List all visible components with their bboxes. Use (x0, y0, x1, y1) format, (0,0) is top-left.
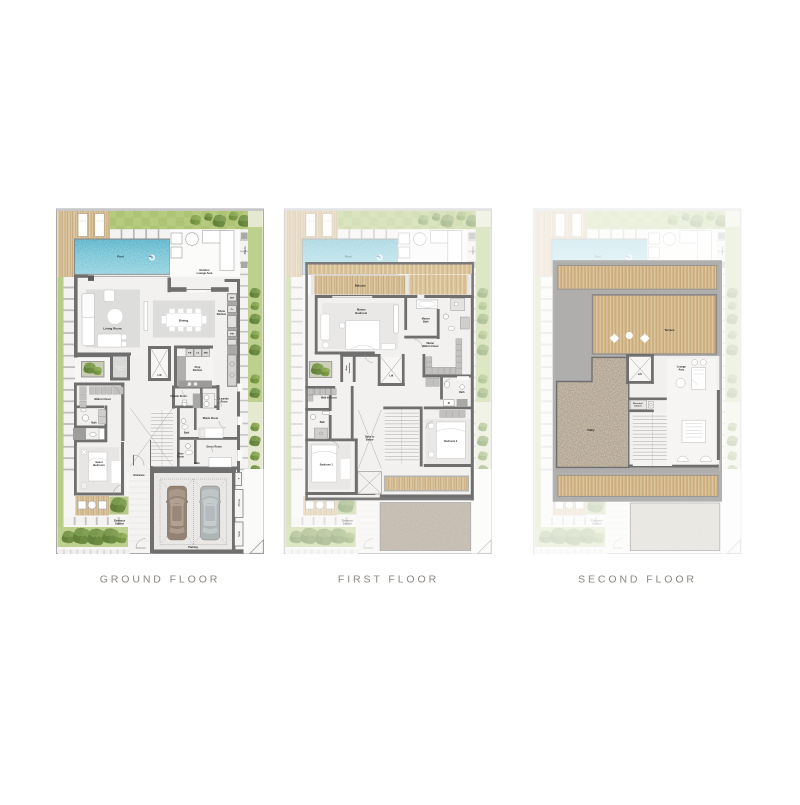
svg-text:Bedroom 1: Bedroom 1 (320, 464, 334, 467)
svg-text:Maids Room: Maids Room (203, 416, 219, 420)
svg-text:Garden: Garden (115, 522, 124, 526)
svg-text:Bath: Bath (194, 462, 200, 465)
svg-text:Lounge Area: Lounge Area (197, 271, 213, 275)
svg-text:Room: Room (221, 401, 228, 404)
svg-text:Entrance: Entrance (133, 473, 145, 477)
svg-text:Pool: Pool (345, 255, 352, 259)
svg-text:Bedroom: Bedroom (355, 311, 367, 315)
svg-text:DW: DW (187, 385, 190, 387)
svg-text:Area: Area (345, 365, 348, 371)
svg-text:Living Room: Living Room (103, 327, 121, 331)
svg-text:Area: Area (679, 369, 685, 372)
svg-text:Dining: Dining (179, 319, 188, 323)
svg-text:F/B: F/B (230, 334, 234, 336)
svg-text:Bath: Bath (423, 321, 429, 324)
svg-text:Pool: Pool (595, 255, 602, 259)
svg-text:W/F: W/F (230, 298, 235, 300)
svg-text:Garbage: Garbage (244, 246, 246, 255)
svg-text:Garbage: Garbage (721, 246, 723, 255)
svg-text:Pool: Pool (117, 255, 124, 259)
svg-text:Kitchen: Kitchen (217, 312, 227, 316)
svg-text:Bath: Bath (91, 422, 97, 425)
svg-text:Kitchen: Kitchen (193, 368, 203, 372)
svg-text:Bedroom: Bedroom (93, 463, 105, 467)
svg-text:Lift: Lift (389, 375, 393, 378)
svg-text:Cabinet: Cabinet (634, 405, 642, 408)
svg-text:Electrical: Electrical (633, 402, 643, 405)
svg-text:SECOND FLOOR: SECOND FLOOR (578, 574, 697, 586)
svg-text:Utility: Utility (238, 531, 241, 537)
svg-text:Bath: Bath (184, 432, 190, 435)
svg-text:Below: Below (366, 439, 373, 442)
svg-text:Storage: Storage (238, 499, 241, 507)
svg-text:Walk-In Closet: Walk-In Closet (422, 345, 439, 348)
svg-text:FIRST FLOOR: FIRST FLOOR (338, 574, 439, 586)
svg-text:Garden: Garden (592, 522, 601, 526)
svg-text:Terrace: Terrace (665, 328, 675, 332)
svg-text:F.B: F.B (188, 353, 192, 355)
svg-text:Room: Room (177, 456, 184, 459)
svg-text:Lift: Lift (638, 373, 642, 376)
svg-text:Parking: Parking (188, 545, 198, 549)
svg-text:Room: Room (117, 369, 123, 371)
svg-text:Bedroom 2: Bedroom 2 (444, 440, 458, 443)
svg-text:Garden: Garden (343, 522, 352, 526)
svg-text:M: M (448, 402, 450, 405)
svg-text:Bath: Bath (459, 391, 465, 394)
svg-text:Utility: Utility (587, 428, 595, 432)
svg-text:GROUND FLOOR: GROUND FLOOR (100, 574, 221, 586)
svg-text:Powder Room: Powder Room (170, 395, 186, 398)
svg-text:Garbage: Garbage (471, 246, 473, 255)
svg-text:Balcony: Balcony (355, 284, 366, 288)
svg-text:Lift: Lift (157, 373, 161, 377)
svg-text:Electrical: Electrical (116, 365, 126, 368)
svg-text:Bath: Bath (320, 421, 326, 424)
svg-text:Walk-In Closet: Walk-In Closet (321, 397, 337, 400)
svg-text:Walk-In Closet: Walk-In Closet (94, 398, 111, 401)
svg-text:Laundries: Laundries (349, 362, 351, 373)
